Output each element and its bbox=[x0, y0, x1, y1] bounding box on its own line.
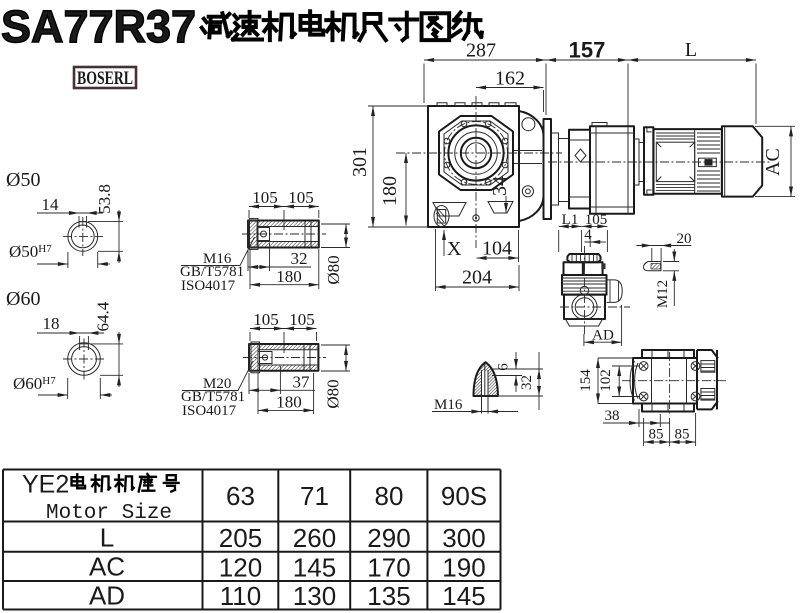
svg-text:105: 105 bbox=[252, 188, 278, 207]
svg-text:BOSERL: BOSERL bbox=[77, 68, 133, 89]
svg-text:64.4: 64.4 bbox=[94, 301, 113, 331]
svg-text:104: 104 bbox=[482, 238, 512, 260]
svg-text:130: 130 bbox=[293, 581, 336, 611]
svg-text:145: 145 bbox=[293, 553, 336, 583]
svg-text:71: 71 bbox=[300, 481, 329, 511]
svg-text:85: 85 bbox=[675, 427, 690, 443]
svg-text:Ø50: Ø50 bbox=[6, 169, 40, 191]
svg-text:162: 162 bbox=[495, 68, 525, 90]
svg-text:260: 260 bbox=[293, 523, 336, 553]
svg-text:105: 105 bbox=[585, 212, 608, 228]
svg-text:ISO4017: ISO4017 bbox=[181, 278, 236, 294]
svg-text:AD: AD bbox=[89, 581, 125, 611]
svg-text:L: L bbox=[100, 523, 114, 553]
svg-text:205: 205 bbox=[219, 523, 262, 553]
svg-text:4: 4 bbox=[584, 227, 592, 243]
svg-text:80: 80 bbox=[375, 481, 404, 511]
svg-text:20: 20 bbox=[677, 231, 692, 247]
svg-text:145: 145 bbox=[442, 581, 485, 611]
svg-text:37: 37 bbox=[293, 373, 311, 392]
svg-text:Ø80: Ø80 bbox=[324, 379, 343, 408]
svg-text:290: 290 bbox=[367, 523, 410, 553]
svg-text:6: 6 bbox=[496, 363, 512, 371]
svg-text:180: 180 bbox=[379, 176, 401, 206]
svg-text:180: 180 bbox=[276, 393, 302, 412]
svg-text:110: 110 bbox=[220, 581, 261, 611]
svg-text:Ø60: Ø60 bbox=[6, 288, 40, 310]
svg-text:M16: M16 bbox=[434, 397, 463, 413]
svg-text:204: 204 bbox=[462, 267, 492, 289]
svg-text:SA77R37: SA77R37 bbox=[1, 1, 196, 52]
svg-text:85: 85 bbox=[649, 427, 664, 443]
svg-text:154: 154 bbox=[578, 369, 594, 392]
svg-text:AC: AC bbox=[762, 148, 784, 176]
svg-text:300: 300 bbox=[442, 523, 485, 553]
svg-text:ISO4017: ISO4017 bbox=[182, 403, 237, 419]
svg-text:X: X bbox=[447, 238, 462, 260]
svg-text:135: 135 bbox=[367, 581, 410, 611]
svg-text:L: L bbox=[685, 39, 697, 61]
svg-text:90S: 90S bbox=[441, 481, 487, 511]
svg-text:AC: AC bbox=[89, 552, 125, 582]
svg-text:M12: M12 bbox=[655, 280, 671, 308]
svg-text:120: 120 bbox=[219, 553, 262, 583]
svg-text:63: 63 bbox=[226, 481, 255, 511]
svg-text:34: 34 bbox=[489, 176, 511, 196]
svg-text:287: 287 bbox=[466, 40, 496, 62]
svg-text:32: 32 bbox=[291, 249, 308, 268]
svg-text:Ø80: Ø80 bbox=[324, 255, 343, 284]
svg-text:301: 301 bbox=[349, 147, 371, 177]
svg-text:AD: AD bbox=[592, 328, 614, 344]
svg-text:105: 105 bbox=[253, 310, 279, 329]
svg-text:38: 38 bbox=[605, 408, 620, 424]
svg-text:L1: L1 bbox=[562, 212, 579, 228]
svg-text:YE2: YE2 bbox=[22, 471, 69, 499]
svg-text:105: 105 bbox=[288, 188, 314, 207]
svg-text:180: 180 bbox=[276, 267, 302, 286]
svg-text:14: 14 bbox=[42, 195, 60, 214]
svg-text:170: 170 bbox=[367, 553, 410, 583]
svg-text:102: 102 bbox=[598, 369, 614, 392]
svg-text:190: 190 bbox=[442, 553, 485, 583]
svg-text:105: 105 bbox=[289, 310, 315, 329]
svg-text:Ø50H7: Ø50H7 bbox=[9, 242, 52, 261]
svg-text:Ø60H7: Ø60H7 bbox=[13, 374, 56, 393]
svg-text:18: 18 bbox=[43, 314, 60, 333]
svg-text:53.8: 53.8 bbox=[95, 184, 114, 214]
svg-text:157: 157 bbox=[569, 38, 606, 63]
svg-text:32: 32 bbox=[519, 375, 535, 390]
